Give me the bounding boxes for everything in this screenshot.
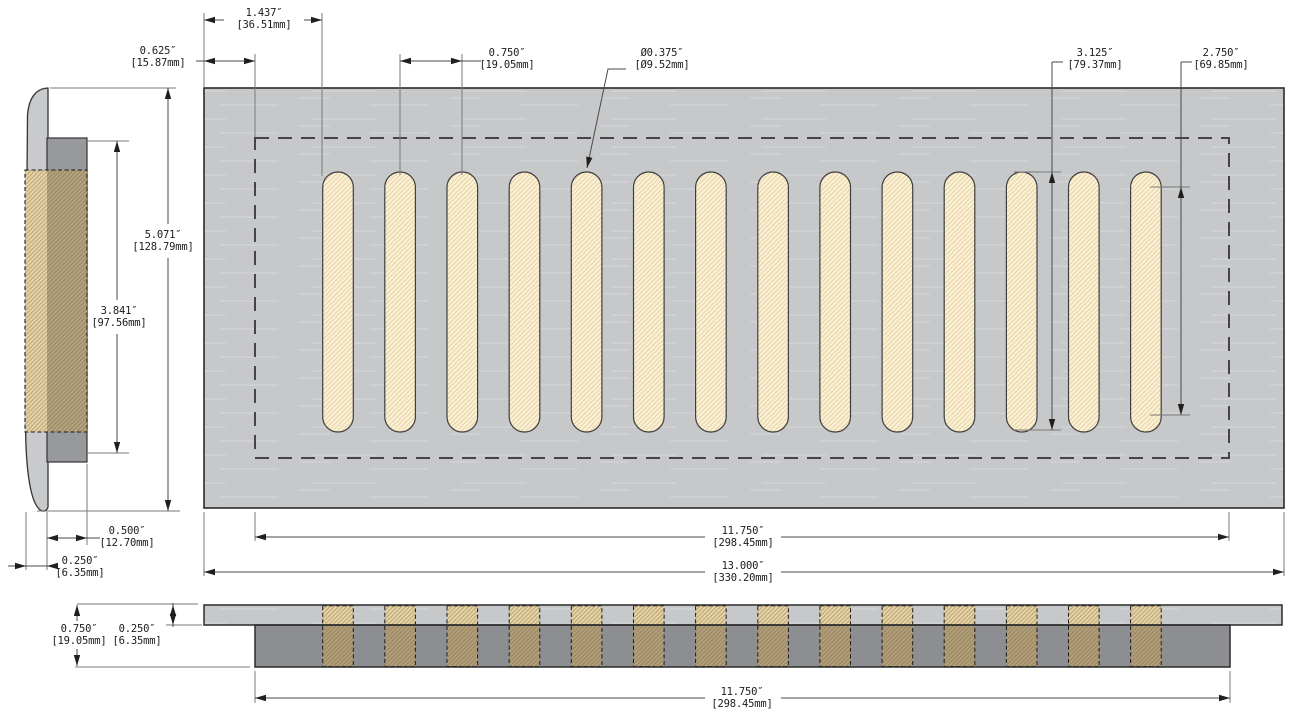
top-view <box>204 88 1284 508</box>
side-hidden-slot-hatch <box>25 170 87 432</box>
section-slot-hatch <box>385 606 416 667</box>
section-slot-hatch <box>1131 606 1162 667</box>
slot <box>634 172 665 432</box>
slot <box>385 172 416 432</box>
dim-plate-thickness-label: 0.250″[6.35mm] <box>87 623 187 647</box>
dim-plate-height-label: 5.071″[128.79mm] <box>113 229 213 253</box>
section-slot-hatch <box>758 606 789 667</box>
section-slot-hatch <box>1069 606 1100 667</box>
section-slot-hatch <box>696 606 727 667</box>
slot <box>323 172 354 432</box>
dim-sleeve-height-label: 3.841″[97.56mm] <box>69 305 169 329</box>
dim-slot-width-label: Ø0.375″[Ø9.52mm] <box>612 47 712 71</box>
slot <box>820 172 851 432</box>
dim-slot-pitch-label: 0.750″[19.05mm] <box>457 47 557 71</box>
cad-drawing-canvas <box>0 0 1308 725</box>
dim-slot-length-label: 3.125″[79.37mm] <box>1045 47 1145 71</box>
bottom-view <box>204 605 1282 667</box>
slot <box>509 172 540 432</box>
slot <box>1069 172 1100 432</box>
dim-opening-width-label: 11.750″[298.45mm] <box>693 525 793 549</box>
section-slot-hatch <box>634 606 665 667</box>
section-slot-hatch <box>820 606 851 667</box>
slot <box>447 172 478 432</box>
dim-sleeve-depth-label: 0.500″[12.70mm] <box>77 525 177 549</box>
section-slot-hatch <box>882 606 913 667</box>
slot <box>696 172 727 432</box>
section-slot-hatch <box>509 606 540 667</box>
section-slot-hatch <box>571 606 602 667</box>
slot <box>882 172 913 432</box>
dim-face-thickness-label: 0.250″[6.35mm] <box>30 555 130 579</box>
slot <box>944 172 975 432</box>
dim-opening-inset-label: 0.625″[15.87mm] <box>108 45 208 69</box>
dim-plate-width-label: 13.000″[330.20mm] <box>693 560 793 584</box>
section-slot-hatch <box>944 606 975 667</box>
slot <box>1131 172 1162 432</box>
dim-opening-width-bottom-label: 11.750″[298.45mm] <box>692 686 792 710</box>
slot <box>758 172 789 432</box>
dim-slot-straight-length-label: 2.750″[69.85mm] <box>1171 47 1271 71</box>
section-faceplate-slab <box>204 605 1282 625</box>
dim-slot-offset-label: 1.437″[36.51mm] <box>214 7 314 31</box>
side-view <box>25 88 87 511</box>
drawing-sheet: 1.437″[36.51mm] 0.625″[15.87mm] 0.750″[1… <box>0 0 1308 725</box>
section-slot-hatch <box>1006 606 1037 667</box>
slot <box>1006 172 1037 432</box>
faceplate <box>204 88 1284 508</box>
slot <box>571 172 602 432</box>
section-slot-hatch <box>447 606 478 667</box>
section-slot-hatch <box>323 606 354 667</box>
